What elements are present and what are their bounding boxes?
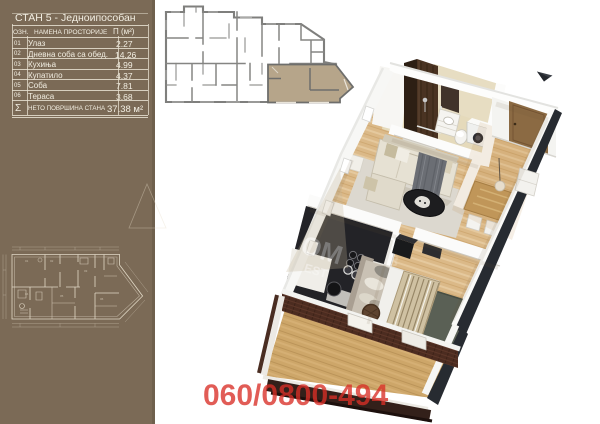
svg-text:04: 04 <box>25 292 29 296</box>
svg-text:06: 06 <box>100 297 104 301</box>
svg-text:05: 05 <box>60 294 64 298</box>
svg-text:01: 01 <box>25 259 29 263</box>
svg-text:03: 03 <box>84 269 88 273</box>
svg-text:02: 02 <box>50 259 54 263</box>
